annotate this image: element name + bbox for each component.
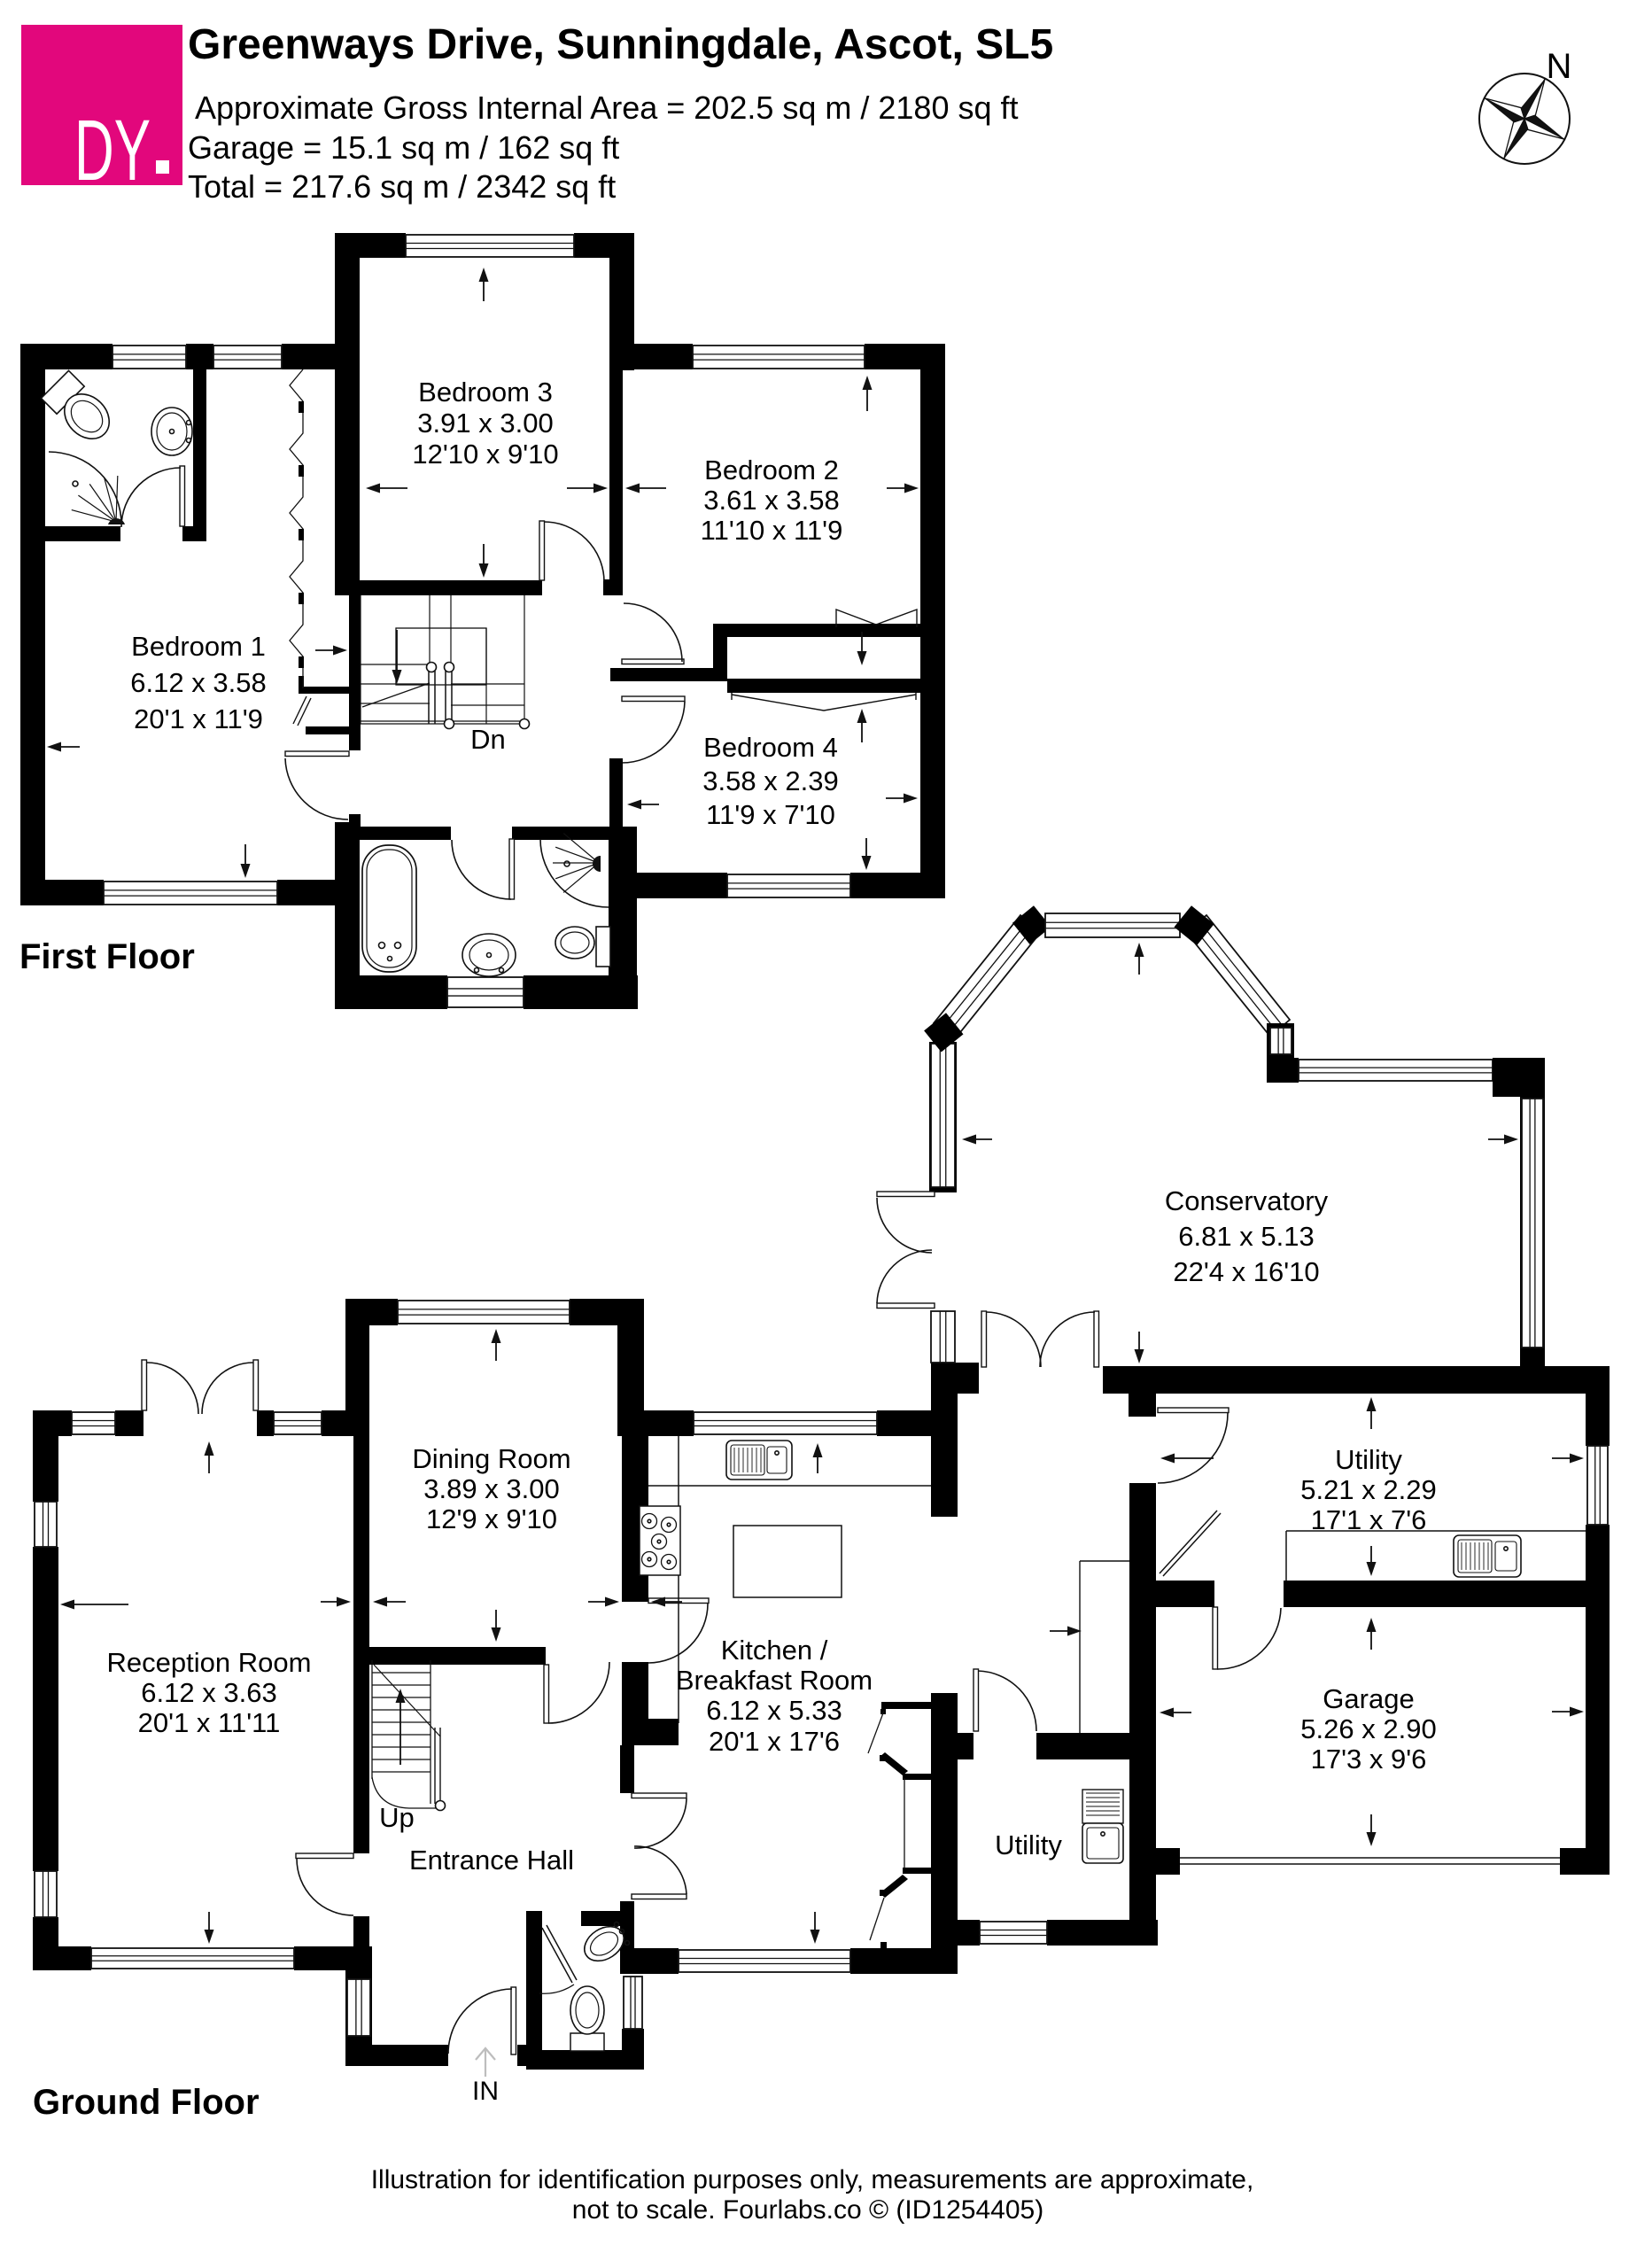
svg-text:Dn: Dn	[470, 724, 506, 755]
svg-text:Garage = 15.1 sq m / 162 sq ft: Garage = 15.1 sq m / 162 sq ft	[188, 129, 619, 166]
svg-text:Dining Room: Dining Room	[412, 1443, 570, 1474]
svg-text:3.61 x 3.58: 3.61 x 3.58	[703, 485, 839, 516]
svg-text:12'10 x 9'10: 12'10 x 9'10	[412, 439, 558, 470]
svg-text:11'10 x 11'9: 11'10 x 11'9	[701, 515, 843, 546]
svg-text:Total = 217.6 sq m / 2342 sq f: Total = 217.6 sq m / 2342 sq ft	[188, 168, 616, 205]
svg-text:Approximate Gross Internal Are: Approximate Gross Internal Area = 202.5 …	[195, 89, 1019, 126]
svg-text:Conservatory: Conservatory	[1165, 1185, 1329, 1216]
svg-text:5.26 x 2.90: 5.26 x 2.90	[1300, 1713, 1436, 1744]
svg-text:20'1 x 17'6: 20'1 x 17'6	[709, 1726, 840, 1757]
svg-text:3.91 x 3.00: 3.91 x 3.00	[417, 408, 553, 439]
svg-text:Kitchen /: Kitchen /	[721, 1635, 828, 1666]
svg-text:Entrance Hall: Entrance Hall	[409, 1845, 574, 1876]
svg-text:6.12 x 3.63: 6.12 x 3.63	[141, 1677, 276, 1708]
svg-text:17'1 x 7'6: 17'1 x 7'6	[1311, 1504, 1427, 1535]
svg-text:Bedroom 1: Bedroom 1	[131, 631, 266, 662]
svg-text:Utility: Utility	[995, 1829, 1062, 1860]
svg-text:Illustration for identificatio: Illustration for identification purposes…	[371, 2165, 1254, 2194]
svg-text:22'4 x 16'10: 22'4 x 16'10	[1173, 1256, 1319, 1287]
svg-text:Garage: Garage	[1323, 1683, 1414, 1714]
svg-text:6.81 x 5.13: 6.81 x 5.13	[1178, 1221, 1314, 1252]
svg-text:DY: DY	[74, 102, 151, 198]
svg-text:Reception Room: Reception Room	[107, 1647, 312, 1678]
svg-text:not to scale. Fourlabs.co © (I: not to scale. Fourlabs.co © (ID1254405)	[572, 2195, 1043, 2225]
svg-text:5.21 x 2.29: 5.21 x 2.29	[1300, 1474, 1436, 1505]
svg-text:Greenways Drive, Sunningdale,: Greenways Drive, Sunningdale, Ascot, SL5	[188, 21, 1053, 68]
svg-text:20'1 x 11'9: 20'1 x 11'9	[134, 703, 263, 734]
svg-text:3.89 x 3.00: 3.89 x 3.00	[423, 1473, 559, 1504]
svg-text:11'9 x 7'10: 11'9 x 7'10	[706, 799, 835, 830]
svg-text:Ground Floor: Ground Floor	[33, 2083, 260, 2122]
svg-text:Breakfast Room: Breakfast Room	[676, 1665, 873, 1696]
svg-text:Utility: Utility	[1335, 1444, 1402, 1475]
svg-text:6.12 x 3.58: 6.12 x 3.58	[130, 667, 266, 698]
svg-text:Bedroom 4: Bedroom 4	[703, 732, 838, 763]
svg-text:Bedroom 3: Bedroom 3	[418, 377, 553, 408]
svg-text:3.58 x 2.39: 3.58 x 2.39	[702, 765, 838, 796]
svg-text:IN: IN	[472, 2077, 499, 2106]
svg-text:Up: Up	[379, 1802, 415, 1833]
svg-text:20'1 x 11'11: 20'1 x 11'11	[138, 1707, 281, 1738]
svg-text:6.12 x 5.33: 6.12 x 5.33	[706, 1695, 842, 1726]
svg-text:Bedroom 2: Bedroom 2	[704, 454, 839, 485]
svg-text:12'9 x 9'10: 12'9 x 9'10	[426, 1503, 557, 1534]
svg-text:17'3 x 9'6: 17'3 x 9'6	[1311, 1744, 1427, 1775]
svg-text:First Floor: First Floor	[19, 937, 195, 976]
svg-text:N: N	[1547, 47, 1572, 86]
